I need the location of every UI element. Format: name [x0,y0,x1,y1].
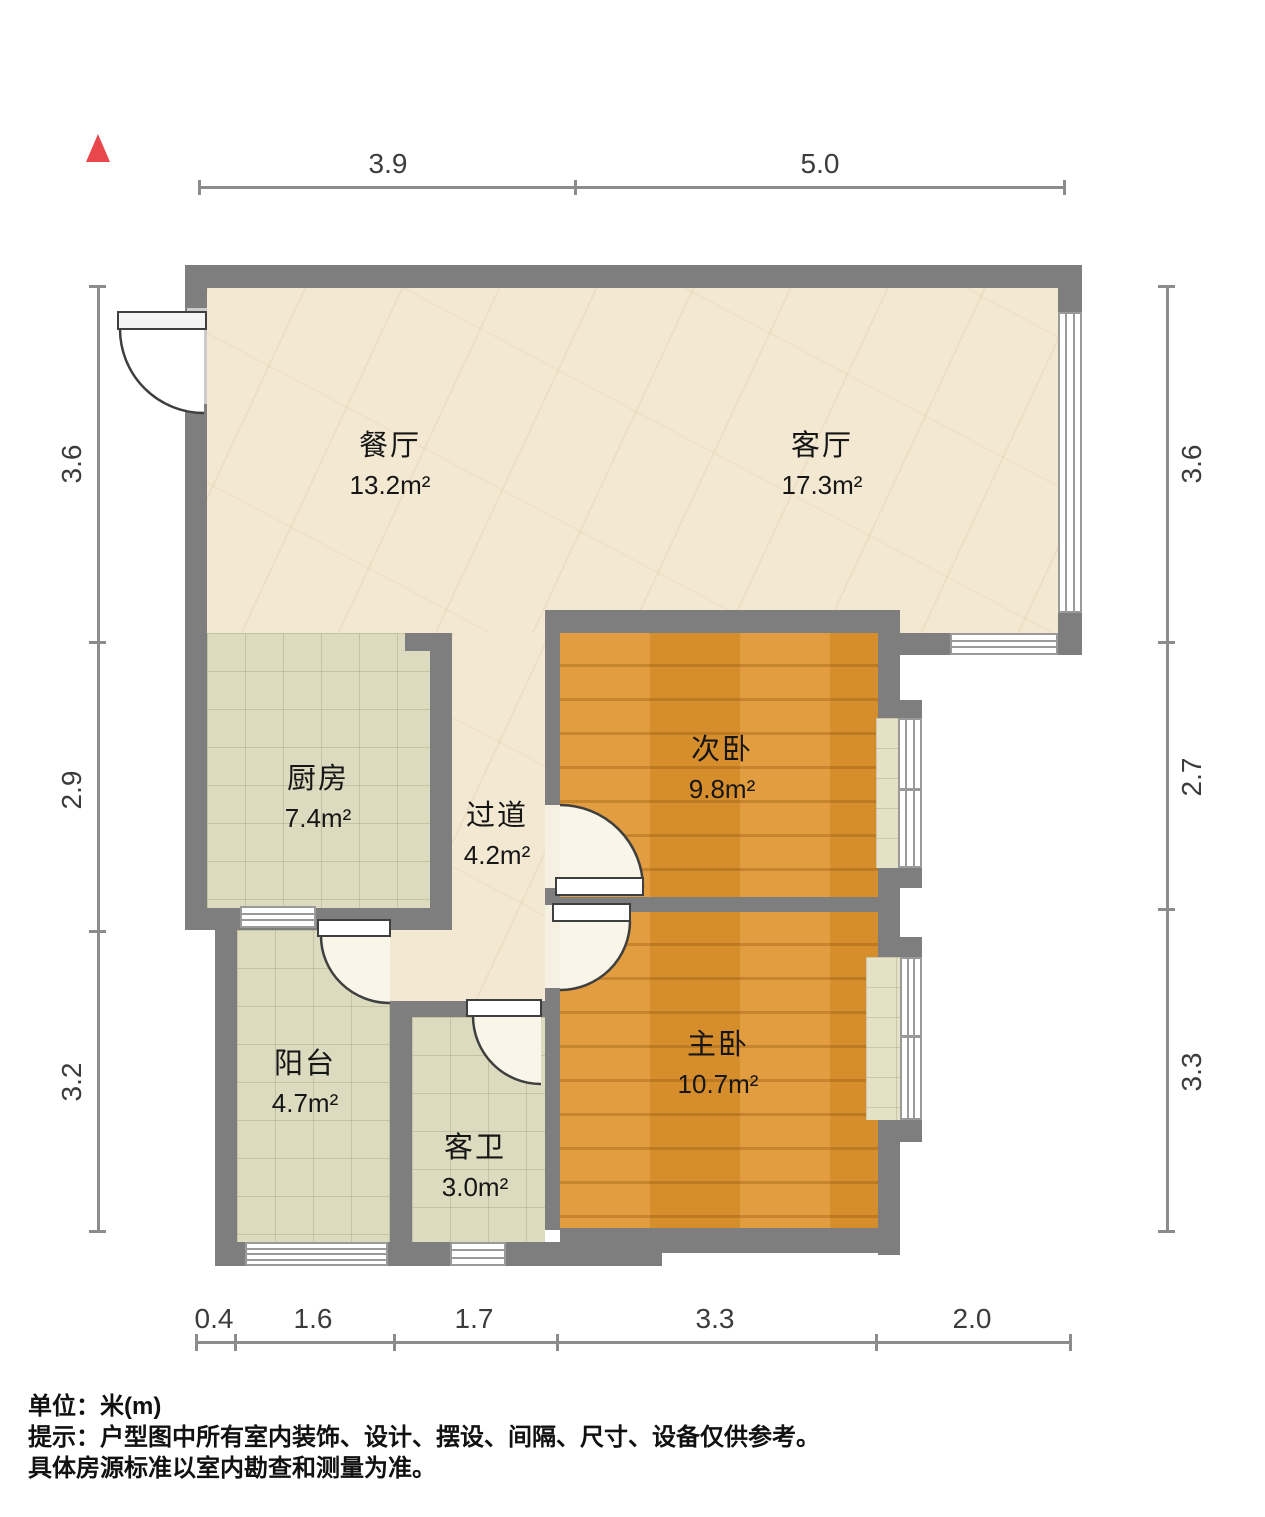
room-label-hallway: 过道 4.2m² [417,792,577,871]
room-area: 4.7m² [225,1088,385,1119]
floorplan-page: 餐厅 13.2m² 客厅 17.3m² 厨房 7.4m² 过道 4.2m² 次卧… [0,0,1265,1517]
dim-tick [574,180,577,195]
room-area: 9.8m² [642,774,802,805]
room-area: 3.0m² [395,1172,555,1203]
room-name: 客卫 [395,1124,555,1166]
dim-label-right-3: 3.3 [1176,1022,1208,1122]
dim-label-bottom-3: 1.7 [424,1303,524,1335]
dim-tick [1069,1334,1072,1351]
dim-tick [556,1334,559,1351]
room-area: 4.2m² [417,840,577,871]
guest-bathroom-door [467,1000,541,1084]
room-label-living: 客厅 17.3m² [742,422,902,501]
room-area: 17.3m² [742,470,902,501]
entry-door [118,312,206,413]
dim-label-bottom-1: 0.4 [164,1303,264,1335]
dim-label-left-2: 2.9 [56,740,88,840]
room-label-guest-bathroom: 客卫 3.0m² [395,1124,555,1203]
dim-tick [1063,180,1066,195]
dim-label-right-2: 2.7 [1176,727,1208,827]
dim-tick [1158,285,1175,288]
footer-hint-line1: 提示：户型图中所有室内装饰、设计、摆设、间隔、尺寸、设备仅供参考。 [28,1417,820,1452]
dim-tick [89,1230,106,1233]
dim-tick [1158,641,1175,644]
dim-tick [195,1334,198,1351]
dim-tick [198,180,201,195]
dim-label-top-2: 5.0 [770,148,870,180]
dim-label-top-1: 3.9 [338,148,438,180]
room-label-kitchen: 厨房 7.4m² [238,755,398,834]
dim-tick [234,1334,237,1351]
dim-tick [89,641,106,644]
room-area: 13.2m² [310,470,470,501]
room-name: 主卧 [638,1021,798,1063]
dim-label-bottom-2: 1.6 [263,1303,363,1335]
dim-label-bottom-4: 3.3 [665,1303,765,1335]
dim-label-left-1: 3.6 [56,414,88,514]
master-bedroom-door [545,904,630,990]
dim-tick [875,1334,878,1351]
dim-label-left-3: 3.2 [56,1032,88,1132]
dim-line-bottom [196,1341,1072,1344]
room-label-balcony: 阳台 4.7m² [225,1040,385,1119]
room-name: 厨房 [238,755,398,797]
room-name: 次卧 [642,726,802,768]
dim-tick [1158,908,1175,911]
dim-tick [89,930,106,933]
balcony-door [318,920,390,1003]
dim-line-top [200,186,1066,189]
dim-line-left [97,286,100,1232]
north-arrow-icon [86,134,110,162]
dim-tick [1158,1230,1175,1233]
door-symbols-layer [0,0,1265,1517]
room-label-second-bedroom: 次卧 9.8m² [642,726,802,805]
dim-label-bottom-5: 2.0 [922,1303,1022,1335]
footer-unit-label: 单位：米(m) [28,1386,161,1421]
room-area: 10.7m² [638,1069,798,1100]
room-name: 阳台 [225,1040,385,1082]
dim-tick [393,1334,396,1351]
dim-line-right [1166,286,1169,1232]
dim-label-right-1: 3.6 [1176,414,1208,514]
room-name: 过道 [417,792,577,834]
room-name: 客厅 [742,422,902,464]
room-label-master-bedroom: 主卧 10.7m² [638,1021,798,1100]
room-area: 7.4m² [238,803,398,834]
dim-tick [89,285,106,288]
footer-hint-line2: 具体房源标准以室内勘查和测量为准。 [28,1448,436,1483]
room-name: 餐厅 [310,422,470,464]
room-label-dining: 餐厅 13.2m² [310,422,470,501]
